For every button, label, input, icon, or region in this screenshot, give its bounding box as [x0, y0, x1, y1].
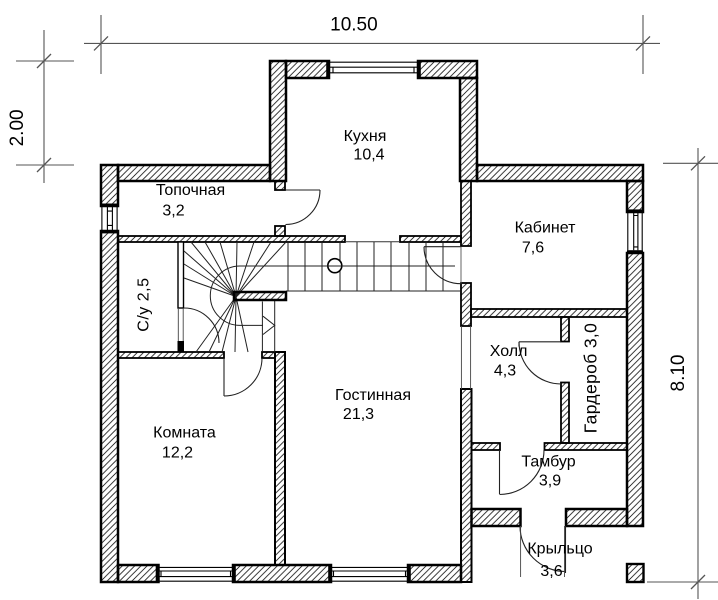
svg-text:С/у 2,5: С/у 2,5: [136, 278, 153, 332]
svg-text:10.50: 10.50: [330, 14, 378, 35]
svg-text:Кухня: Кухня: [344, 128, 387, 145]
svg-text:3,6: 3,6: [540, 563, 562, 580]
svg-text:10,4: 10,4: [353, 147, 384, 164]
svg-text:21,3: 21,3: [343, 406, 374, 423]
svg-text:Холл: Холл: [490, 343, 528, 360]
svg-text:Кабинет: Кабинет: [515, 219, 577, 236]
svg-text:Тамбур: Тамбур: [521, 454, 575, 471]
svg-text:8.10: 8.10: [668, 355, 689, 392]
svg-text:3,2: 3,2: [162, 203, 184, 220]
svg-text:3,9: 3,9: [539, 473, 561, 490]
svg-text:Гостинная: Гостинная: [335, 387, 411, 404]
svg-text:Топочная: Топочная: [156, 182, 225, 199]
svg-text:Гардероб 3,0: Гардероб 3,0: [581, 323, 601, 433]
svg-text:Комната: Комната: [153, 424, 216, 441]
svg-text:2.00: 2.00: [7, 109, 28, 146]
svg-text:Крыльцо: Крыльцо: [527, 541, 592, 558]
svg-text:12,2: 12,2: [162, 445, 193, 462]
svg-text:4,3: 4,3: [494, 363, 516, 380]
svg-text:7,6: 7,6: [522, 240, 544, 257]
